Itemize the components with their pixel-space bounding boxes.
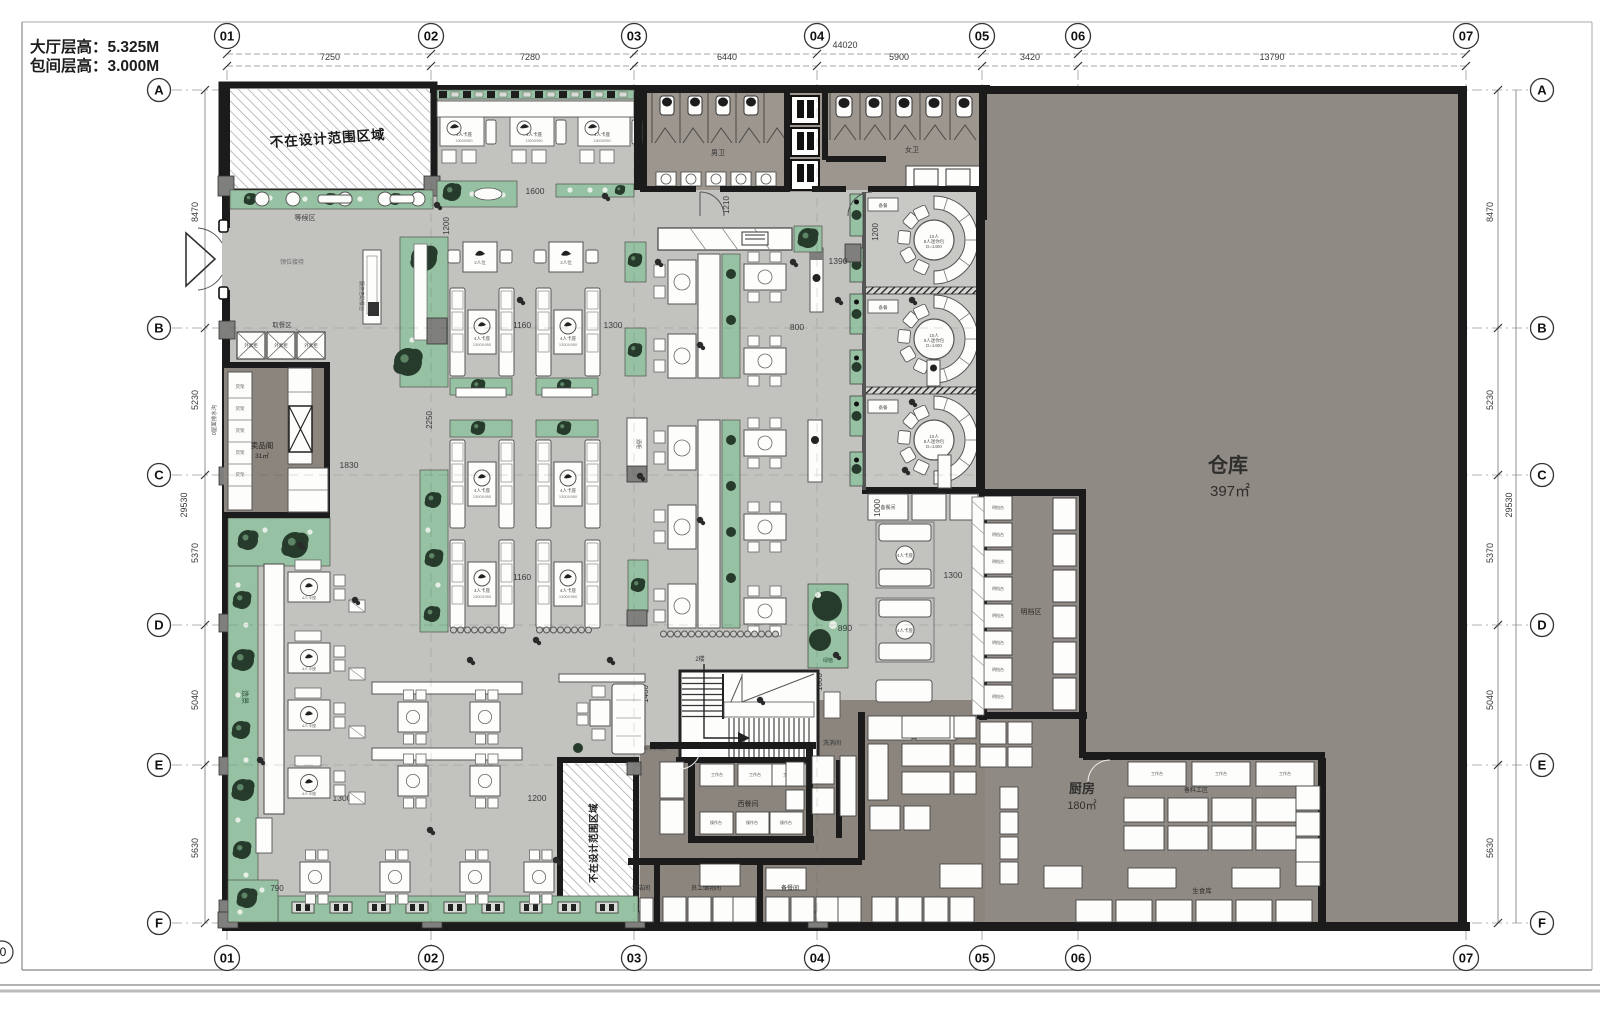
svg-text:4人卡座: 4人卡座: [560, 335, 577, 342]
svg-text:4人卡座: 4人卡座: [302, 665, 316, 671]
svg-text:1300X950: 1300X950: [525, 139, 542, 143]
svg-text:7280: 7280: [520, 52, 540, 62]
svg-text:1600: 1600: [526, 186, 545, 196]
svg-text:1390: 1390: [829, 256, 848, 266]
svg-text:备餐: 备餐: [879, 202, 888, 209]
svg-text:4人卡座: 4人卡座: [302, 790, 316, 796]
svg-text:397㎡: 397㎡: [1210, 483, 1250, 500]
svg-text:1300X950: 1300X950: [559, 594, 578, 599]
svg-text:厨房: 厨房: [1069, 781, 1095, 796]
svg-text:B: B: [154, 321, 163, 336]
svg-text:05: 05: [975, 951, 989, 966]
svg-text:备料工区: 备料工区: [1184, 786, 1208, 794]
svg-text:1300X950: 1300X950: [473, 494, 492, 499]
svg-text:货架: 货架: [236, 449, 245, 456]
svg-text:D=1400: D=1400: [926, 444, 942, 449]
svg-text:不在设计范围区域: 不在设计范围区域: [588, 803, 600, 883]
svg-text:04: 04: [810, 29, 825, 44]
svg-text:4人卡座: 4人卡座: [560, 587, 577, 594]
svg-text:5900: 5900: [889, 52, 909, 62]
svg-text:06: 06: [1071, 29, 1085, 44]
svg-text:C: C: [1537, 468, 1547, 483]
svg-text:4人卡座: 4人卡座: [302, 722, 316, 728]
svg-text:外卖柜: 外卖柜: [244, 342, 258, 349]
svg-text:29530: 29530: [1504, 492, 1514, 517]
svg-text:800: 800: [790, 322, 804, 332]
svg-text:A: A: [154, 83, 164, 98]
svg-text:0屋面排水沟: 0屋面排水沟: [210, 404, 218, 435]
svg-text:1830: 1830: [340, 460, 359, 470]
svg-text:07: 07: [1459, 29, 1473, 44]
svg-text:B: B: [1537, 321, 1546, 336]
svg-text:E: E: [1538, 758, 1547, 773]
svg-text:绿植: 绿植: [823, 657, 833, 664]
svg-text:1300X950: 1300X950: [559, 494, 578, 499]
svg-text:工作台: 工作台: [749, 771, 761, 777]
svg-text:4人卡座: 4人卡座: [897, 552, 914, 559]
svg-text:4人卡座: 4人卡座: [302, 594, 316, 600]
svg-text:备餐: 备餐: [879, 404, 888, 411]
svg-text:1300X950: 1300X950: [455, 139, 472, 143]
svg-text:F: F: [155, 916, 163, 931]
svg-text:等候区: 等候区: [295, 213, 316, 222]
svg-text:明档台: 明档台: [992, 558, 1004, 564]
svg-text:02: 02: [424, 29, 438, 44]
svg-text:工作台: 工作台: [711, 771, 723, 777]
svg-text:44020: 44020: [832, 40, 857, 50]
svg-text:1200: 1200: [871, 223, 880, 241]
svg-text:8470: 8470: [1485, 202, 1495, 222]
svg-text:2人位: 2人位: [474, 259, 486, 265]
svg-text:05: 05: [975, 29, 989, 44]
svg-text:5230: 5230: [190, 390, 200, 410]
svg-text:操作台: 操作台: [746, 819, 758, 825]
svg-text:清洁间: 清洁间: [632, 884, 650, 892]
svg-text:D: D: [154, 618, 163, 633]
svg-text:1300X950: 1300X950: [473, 594, 492, 599]
svg-text:货架: 货架: [236, 427, 245, 434]
svg-text:明档台: 明档台: [992, 693, 1004, 699]
svg-text:大厅层高：5.325M: 大厅层高：5.325M: [30, 37, 159, 56]
svg-text:D=1400: D=1400: [926, 343, 942, 348]
svg-text:酒柜: 酒柜: [635, 439, 642, 449]
svg-text:13790: 13790: [1259, 52, 1284, 62]
svg-text:4人卡座: 4人卡座: [474, 587, 491, 594]
svg-text:E: E: [155, 758, 164, 773]
svg-text:3420: 3420: [1020, 52, 1040, 62]
svg-text:女卫: 女卫: [905, 145, 919, 154]
svg-text:操作台: 操作台: [710, 819, 722, 825]
svg-text:790: 790: [270, 884, 284, 893]
svg-text:备餐: 备餐: [879, 304, 888, 311]
svg-text:6440: 6440: [717, 52, 737, 62]
svg-text:洗消间: 洗消间: [823, 739, 841, 747]
svg-text:03: 03: [627, 29, 641, 44]
svg-text:5040: 5040: [1485, 690, 1495, 710]
svg-text:7250: 7250: [320, 52, 340, 62]
svg-text:890: 890: [838, 623, 852, 633]
svg-text:5040: 5040: [190, 690, 200, 710]
svg-text:男卫: 男卫: [711, 149, 725, 157]
svg-text:工作台: 工作台: [1215, 770, 1227, 776]
svg-text:操作台: 操作台: [780, 819, 792, 825]
svg-text:卖品阁: 卖品阁: [251, 440, 274, 450]
svg-text:2楼: 2楼: [695, 655, 704, 663]
svg-text:1300X950: 1300X950: [593, 139, 610, 143]
svg-text:31㎡: 31㎡: [255, 451, 269, 460]
svg-text:明档台: 明档台: [992, 612, 1004, 618]
svg-text:货架: 货架: [236, 471, 245, 478]
svg-text:1160: 1160: [513, 572, 532, 582]
svg-text:D=1400: D=1400: [926, 244, 942, 249]
svg-text:领位接待: 领位接待: [280, 258, 304, 266]
svg-text:2人位: 2人位: [560, 259, 572, 265]
svg-text:4人卡座: 4人卡座: [456, 131, 473, 138]
svg-text:1300X950: 1300X950: [559, 342, 578, 347]
svg-text:07: 07: [1459, 951, 1473, 966]
svg-text:02: 02: [424, 951, 438, 966]
svg-text:5630: 5630: [1485, 838, 1495, 858]
svg-text:西餐间: 西餐间: [738, 799, 759, 808]
svg-text:06: 06: [1071, 951, 1085, 966]
svg-text:包间层高：3.000M: 包间层高：3.000M: [30, 56, 159, 75]
svg-text:C: C: [154, 468, 164, 483]
svg-text:生食库: 生食库: [1192, 886, 1212, 895]
svg-text:1200: 1200: [442, 217, 451, 235]
svg-text:5630: 5630: [190, 838, 200, 858]
svg-text:4人卡座: 4人卡座: [526, 131, 543, 138]
svg-text:造景: 造景: [241, 690, 250, 704]
svg-text:4人卡座: 4人卡座: [560, 487, 577, 494]
svg-text:明档台: 明档台: [992, 585, 1004, 591]
svg-text:2250: 2250: [425, 411, 434, 429]
svg-text:1300X950: 1300X950: [473, 342, 492, 347]
svg-text:外卖柜: 外卖柜: [304, 342, 318, 349]
svg-text:1300: 1300: [604, 320, 623, 330]
svg-text:01: 01: [220, 951, 234, 966]
svg-text:1200: 1200: [528, 793, 547, 803]
svg-text:仓库: 仓库: [1207, 453, 1248, 477]
svg-text:1300: 1300: [944, 570, 963, 580]
svg-text:1160: 1160: [513, 320, 532, 330]
svg-text:180㎡: 180㎡: [1067, 799, 1096, 812]
svg-text:03: 03: [627, 951, 641, 966]
svg-text:1000: 1000: [873, 499, 882, 517]
svg-text:明档台: 明档台: [992, 666, 1004, 672]
svg-text:D: D: [1537, 618, 1546, 633]
svg-text:29530: 29530: [179, 492, 189, 517]
svg-text:04: 04: [810, 951, 825, 966]
svg-text:服务自助餐台: 服务自助餐台: [358, 281, 365, 311]
svg-text:明档区: 明档区: [1021, 607, 1042, 616]
svg-text:货架: 货架: [236, 383, 245, 390]
svg-text:0: 0: [0, 945, 7, 959]
svg-text:A: A: [1537, 83, 1547, 98]
svg-text:备餐间: 备餐间: [781, 884, 799, 892]
svg-text:明档台: 明档台: [992, 639, 1004, 645]
svg-text:5370: 5370: [1485, 543, 1495, 563]
svg-text:备餐间: 备餐间: [880, 504, 895, 511]
svg-text:F: F: [1538, 916, 1546, 931]
svg-text:8470: 8470: [190, 202, 200, 222]
svg-text:5370: 5370: [190, 543, 200, 563]
svg-text:4人卡座: 4人卡座: [897, 627, 914, 634]
svg-text:4人卡座: 4人卡座: [594, 131, 611, 138]
svg-text:货架: 货架: [236, 405, 245, 412]
svg-text:工作台: 工作台: [1279, 770, 1291, 776]
svg-text:工作台: 工作台: [1151, 770, 1163, 776]
svg-text:5230: 5230: [1485, 390, 1495, 410]
svg-text:明档台: 明档台: [992, 531, 1004, 537]
svg-text:4人卡座: 4人卡座: [474, 487, 491, 494]
svg-text:4人卡座: 4人卡座: [474, 335, 491, 342]
svg-text:01: 01: [220, 29, 234, 44]
svg-text:外卖柜: 外卖柜: [274, 342, 288, 349]
svg-text:明档台: 明档台: [992, 504, 1004, 510]
